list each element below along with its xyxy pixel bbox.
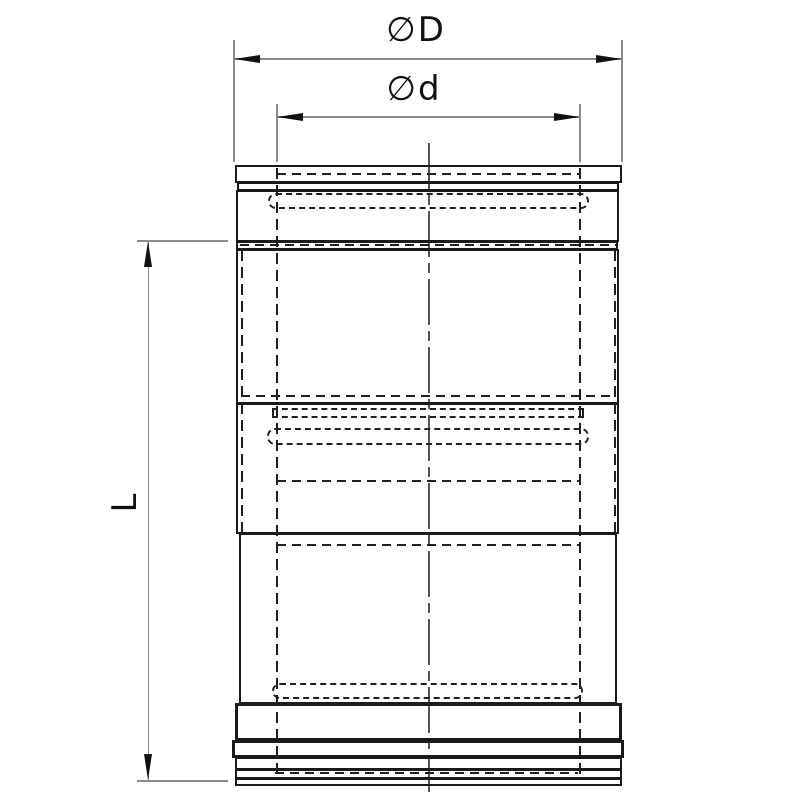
middle-section xyxy=(236,249,619,404)
hidden-line-bottom-band xyxy=(275,772,578,774)
hidden-line-lower-tube-top xyxy=(277,544,580,546)
coupling-seal-groove xyxy=(267,428,589,445)
length-extension-line-bottom xyxy=(137,780,228,782)
outer-diameter-label: ∅D xyxy=(316,13,516,49)
upper-seal-groove xyxy=(268,193,589,209)
lower-tube-section xyxy=(239,533,617,704)
arrow-down-icon xyxy=(144,754,152,780)
coupling-section xyxy=(236,403,619,534)
length-dimension-line xyxy=(148,241,150,780)
lower-seal-groove xyxy=(272,683,583,699)
bottom-flange-band xyxy=(235,703,622,741)
technical-drawing-canvas: ∅D ∅d L xyxy=(0,0,800,800)
arrow-right-icon xyxy=(554,113,580,121)
bottom-collar-band xyxy=(232,740,624,758)
bottom-band-3 xyxy=(235,778,622,786)
inner-diameter-dimension-line xyxy=(277,116,580,118)
hidden-line-top-cap xyxy=(277,173,580,175)
arrow-up-icon xyxy=(144,241,152,267)
inner-diameter-label: ∅d xyxy=(314,72,514,108)
hidden-line-coupling xyxy=(277,480,580,482)
outer-diameter-dimension-line xyxy=(234,58,622,60)
coupling-slot xyxy=(272,408,584,418)
hidden-line-upper-joint xyxy=(240,244,616,246)
arrow-left-icon xyxy=(277,113,303,121)
arrow-left-icon xyxy=(234,55,260,63)
hidden-line-middle-inner-bottom xyxy=(241,395,616,397)
arrow-right-icon xyxy=(596,55,622,63)
length-label: L xyxy=(108,482,144,522)
